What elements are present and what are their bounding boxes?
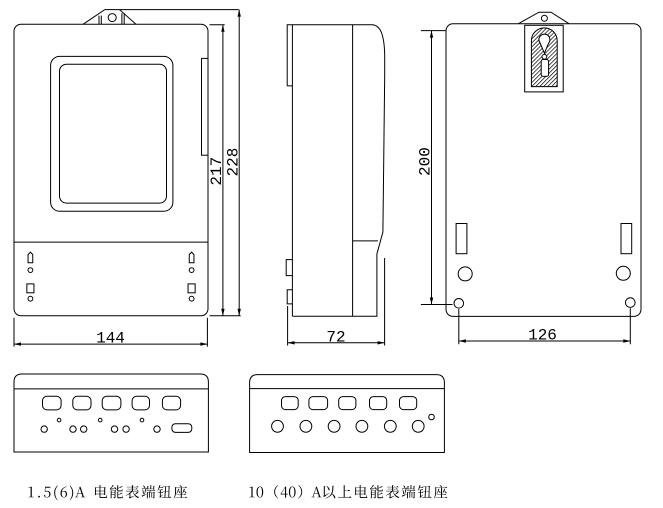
- svg-text:144: 144: [96, 330, 125, 348]
- svg-text:228: 228: [224, 148, 242, 177]
- svg-text:200: 200: [417, 147, 435, 176]
- svg-text:217: 217: [208, 157, 226, 186]
- svg-text:126: 126: [528, 326, 557, 344]
- svg-text:72: 72: [326, 328, 345, 346]
